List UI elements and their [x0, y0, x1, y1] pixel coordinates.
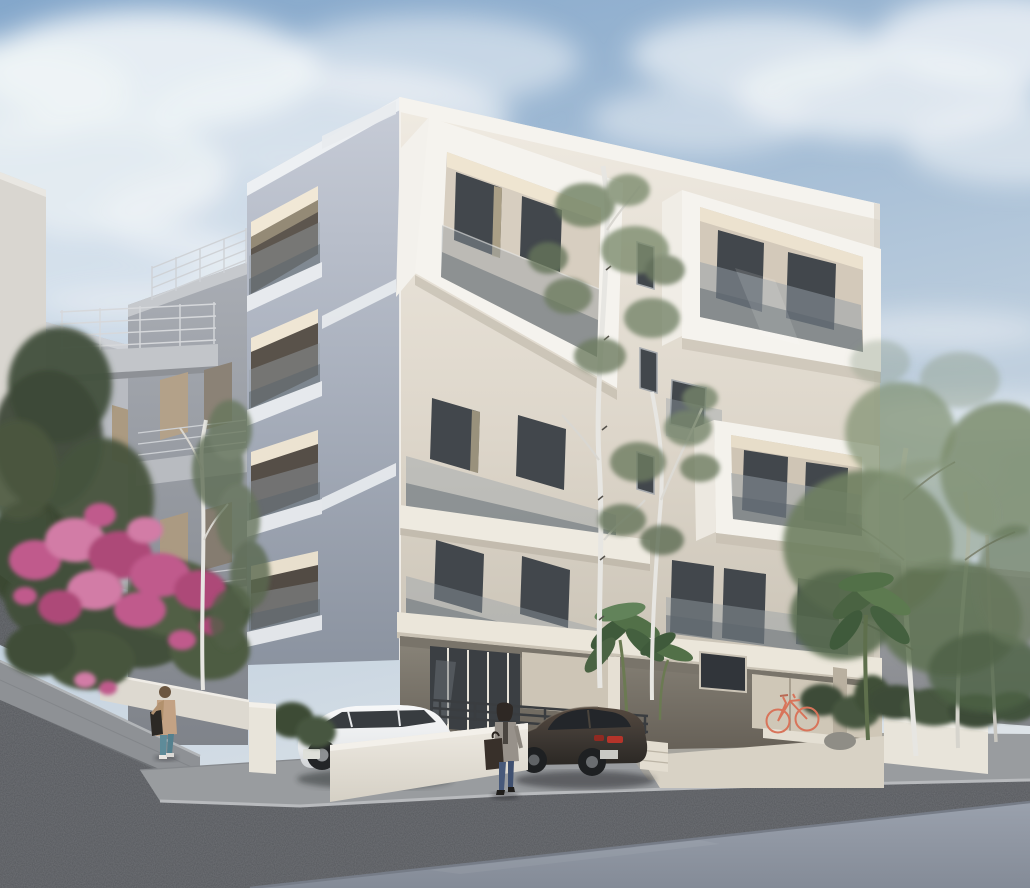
- license-plate: [303, 749, 320, 759]
- gate-pillar: [249, 702, 276, 774]
- boulder: [824, 732, 856, 750]
- taillight: [607, 736, 623, 743]
- entrance-door: [700, 652, 746, 692]
- side-facade: [247, 97, 400, 665]
- rendered-image: [0, 0, 1030, 888]
